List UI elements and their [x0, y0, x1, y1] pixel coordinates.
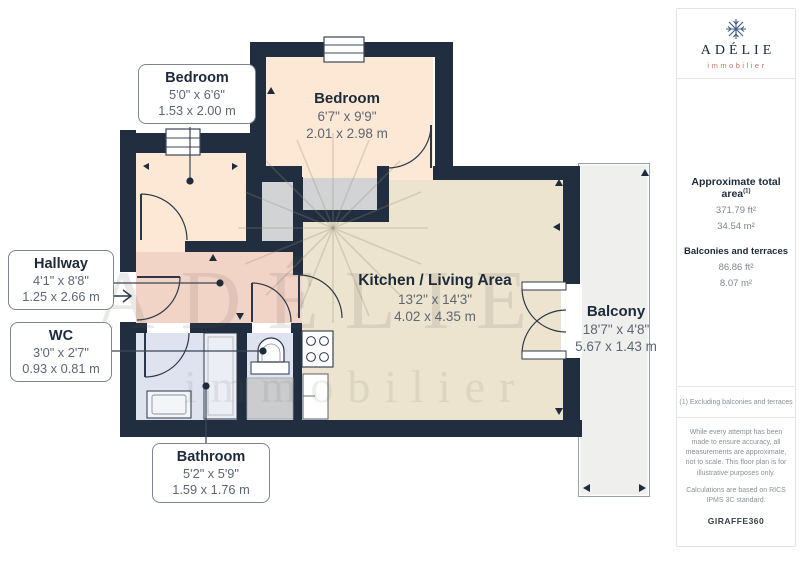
- room-dims-metric: 2.01 x 2.98 m: [267, 126, 427, 141]
- bathroom-label: Bathroom 5'2" x 5'9" 1.59 x 1.76 m: [152, 443, 270, 503]
- brand-logo: ADÉLIE immobilier: [677, 9, 795, 79]
- room-dims-imperial: 3'0" x 2'7": [19, 345, 103, 360]
- brand-subtitle: immobilier: [705, 61, 766, 70]
- bedroom2-label: Bedroom 6'7" x 9'9" 2.01 x 2.98 m: [267, 90, 427, 141]
- room-name: Hallway: [17, 256, 105, 272]
- kitchen-counter-icon: [303, 374, 328, 419]
- total-area-m: 34.54 m²: [717, 221, 755, 232]
- room-name: Bedroom: [147, 70, 247, 86]
- room-dims-metric: 4.02 x 4.35 m: [325, 309, 545, 324]
- bedroom1-label: Bedroom 5'0" x 6'6" 1.53 x 2.00 m: [138, 64, 256, 124]
- room-dims-imperial: 18'7" x 4'8": [556, 322, 676, 337]
- stove-icon: [302, 331, 333, 367]
- balconies-m: 8.07 m²: [720, 278, 752, 289]
- room-name: WC: [19, 328, 103, 344]
- room-dims-imperial: 5'0" x 6'6": [147, 87, 247, 102]
- total-area-ft: 371.79 ft²: [716, 205, 756, 216]
- area-stats: Approximate total area(1) 371.79 ft² 34.…: [677, 79, 795, 387]
- door-icon: [145, 333, 189, 377]
- room-dims-metric: 0.93 x 0.81 m: [19, 361, 103, 376]
- wc-unit-icon: [247, 378, 293, 419]
- room-name: Bedroom: [267, 90, 427, 107]
- footnote-marker: (1): [743, 189, 750, 195]
- total-area-heading: Approximate total area(1): [677, 176, 795, 200]
- wc-label: WC 3'0" x 2'7" 0.93 x 0.81 m: [10, 322, 112, 382]
- info-sidebar: ADÉLIE immobilier Approximate total area…: [676, 8, 796, 547]
- brand-name: ADÉLIE: [697, 43, 776, 59]
- balconies-ft: 86.86 ft²: [719, 262, 754, 273]
- floorplan-page: ADÉLIE immobilier Bedroom 5'0" x 6'6" 1.…: [0, 0, 800, 566]
- disclaimer: While every attempt has been made to ens…: [677, 418, 795, 546]
- room-dims-metric: 1.59 x 1.76 m: [161, 482, 261, 497]
- room-dims-metric: 1.53 x 2.00 m: [147, 103, 247, 118]
- room-name: Bathroom: [161, 449, 261, 465]
- window-icon: [324, 37, 364, 62]
- window-icon: [166, 129, 200, 155]
- room-name: Kitchen / Living Area: [325, 272, 545, 290]
- door-icon: [141, 194, 187, 240]
- area-footnote: (1) Excluding balconies and terraces: [677, 387, 795, 418]
- disclaimer-text-1: While every attempt has been made to ens…: [682, 428, 790, 479]
- hallway-label: Hallway 4'1" x 8'8" 1.25 x 2.66 m: [8, 250, 114, 310]
- giraffe360-logo: GIRAFFE360: [682, 515, 790, 527]
- shower-icon: [147, 391, 191, 418]
- disclaimer-text-2: Calculations are based on RICS IPMS 3C s…: [682, 486, 790, 506]
- room-dims-metric: 5.67 x 1.43 m: [556, 339, 676, 354]
- snowflake-icon: [725, 18, 747, 40]
- balconies-heading: Balconies and terraces: [684, 246, 788, 257]
- toilet-icon: [251, 338, 289, 374]
- room-name: Balcony: [556, 303, 676, 320]
- room-dims-metric: 1.25 x 2.66 m: [17, 289, 105, 304]
- bath-unit-icon: [204, 333, 237, 419]
- room-dims-imperial: 6'7" x 9'9": [267, 109, 427, 124]
- kitchen-label: Kitchen / Living Area 13'2" x 14'3" 4.02…: [325, 272, 545, 324]
- balcony-label: Balcony 18'7" x 4'8" 5.67 x 1.43 m: [556, 303, 676, 354]
- room-dims-imperial: 5'2" x 5'9": [161, 466, 261, 481]
- room-dims-imperial: 4'1" x 8'8": [17, 273, 105, 288]
- room-dims-imperial: 13'2" x 14'3": [325, 292, 545, 307]
